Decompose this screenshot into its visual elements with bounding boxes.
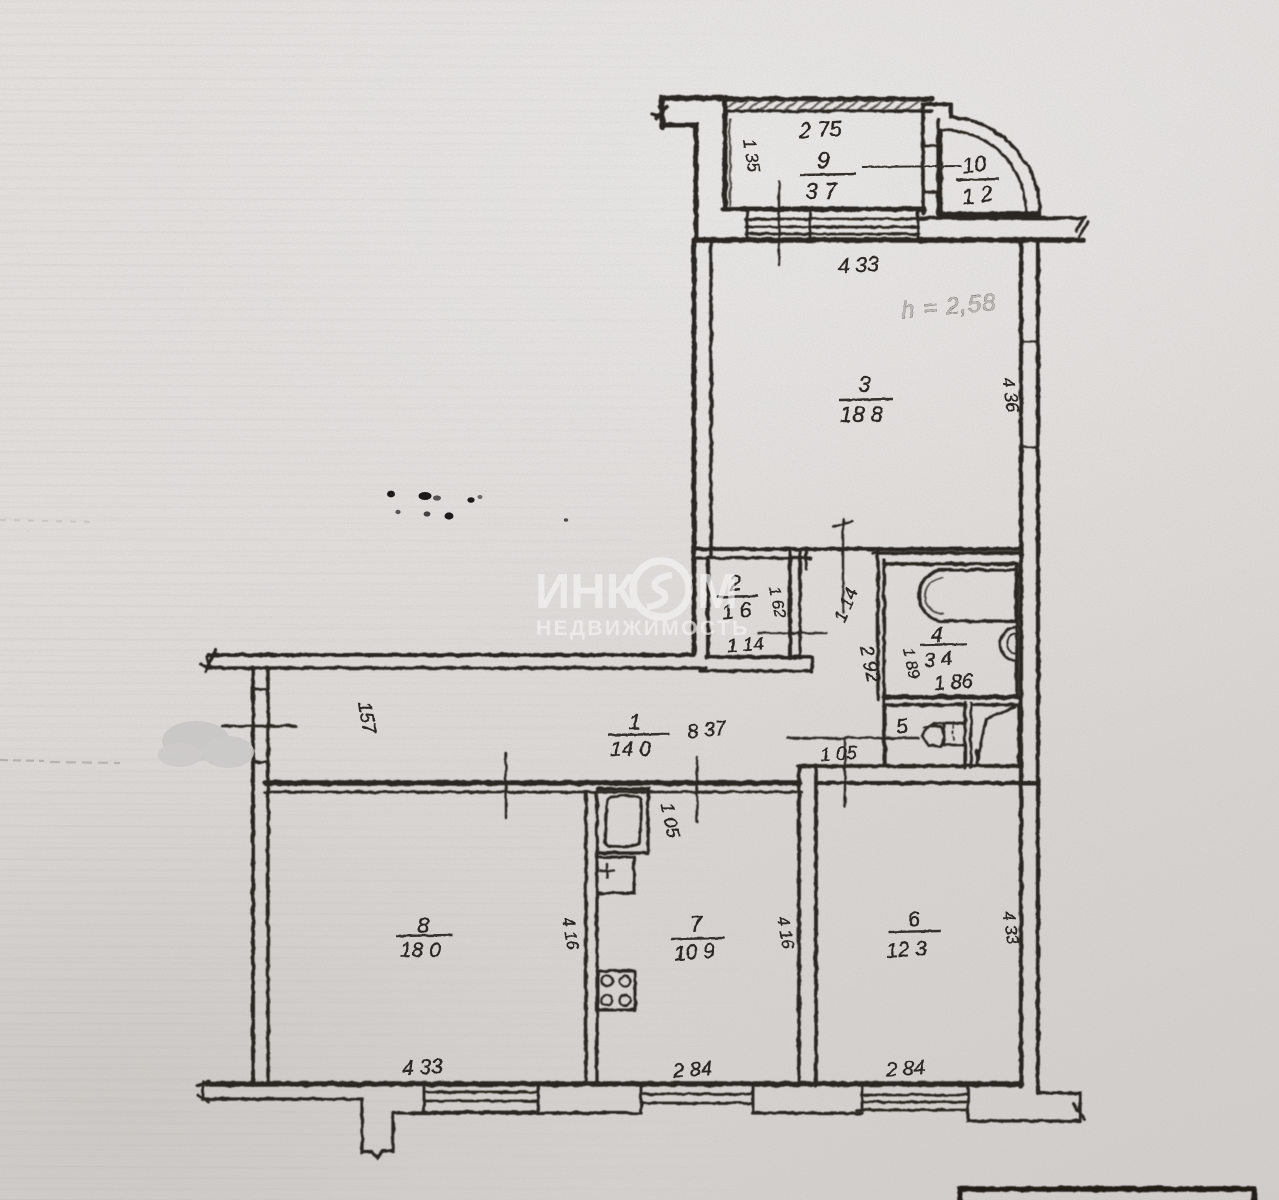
svg-text:1 86: 1 86	[933, 670, 974, 695]
svg-text:НЕДВИЖИМОСТЬ: НЕДВИЖИМОСТЬ	[536, 617, 750, 640]
svg-text:18 8: 18 8	[840, 402, 884, 427]
svg-text:М: М	[697, 565, 738, 619]
svg-text:9: 9	[817, 147, 830, 173]
svg-text:3: 3	[858, 371, 871, 397]
svg-text:1 2: 1 2	[960, 181, 994, 210]
svg-text:10: 10	[960, 150, 988, 178]
svg-text:2 84: 2 84	[671, 1058, 712, 1083]
svg-text:1 05: 1 05	[819, 743, 858, 767]
svg-text:10 9: 10 9	[673, 940, 716, 966]
svg-text:18 0: 18 0	[400, 939, 441, 962]
svg-text:3 7: 3 7	[805, 178, 838, 204]
svg-text:14 0: 14 0	[610, 738, 651, 761]
svg-text:2 75: 2 75	[797, 116, 843, 143]
svg-text:1: 1	[629, 711, 641, 734]
svg-text:3 4: 3 4	[923, 648, 953, 672]
svg-text:ИНК: ИНК	[535, 565, 636, 619]
svg-text:12 3: 12 3	[885, 937, 928, 963]
svg-text:2 84: 2 84	[884, 1057, 925, 1082]
svg-text:4 33: 4 33	[402, 1055, 444, 1080]
svg-text:4 33: 4 33	[837, 253, 880, 279]
